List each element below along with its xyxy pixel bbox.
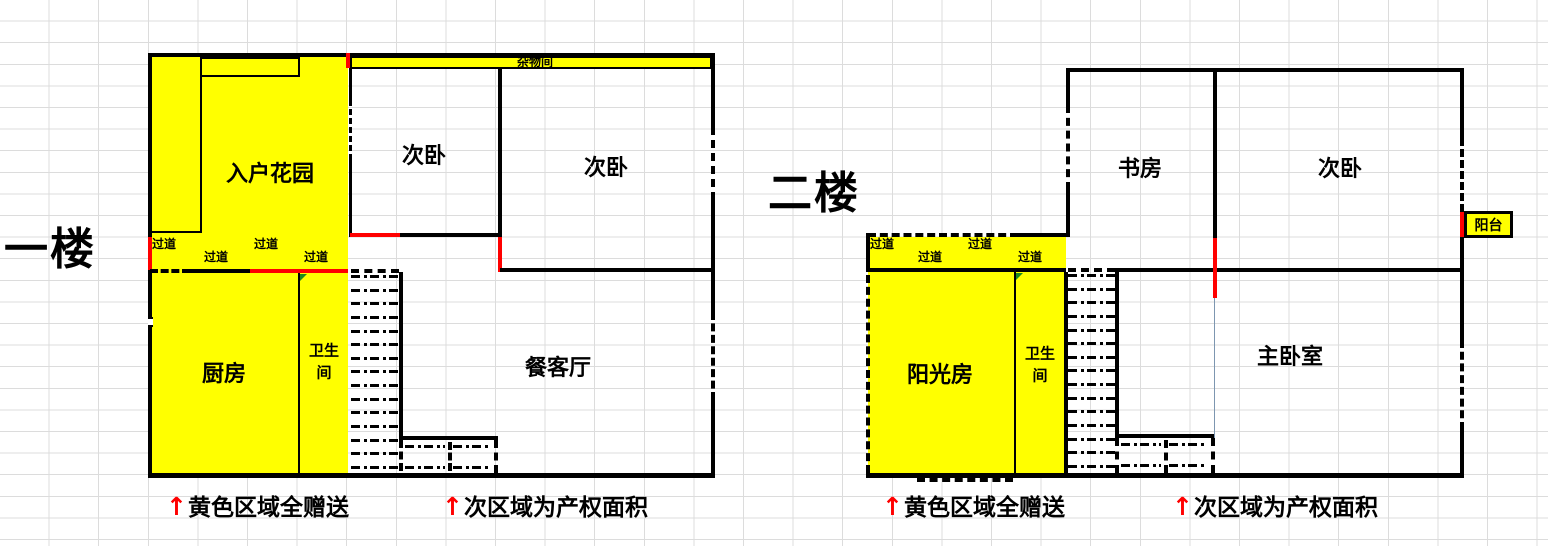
thin-guide-line: [1214, 298, 1215, 438]
room-label-bathroom: 间: [1032, 369, 1047, 384]
wall-opening: [148, 317, 153, 327]
door-marker: [350, 233, 400, 237]
stair-step-line: [405, 466, 445, 469]
room-label-bedroom-right: 次卧: [584, 158, 628, 180]
dashed-wall: [349, 100, 352, 160]
wall-segment: [1115, 268, 1464, 272]
corridor-label: 过道: [304, 251, 328, 263]
room-label-sunroom: 阳光房: [907, 365, 973, 387]
note-text: 次区域为产权面积: [1194, 495, 1378, 521]
wall-segment: [1460, 430, 1464, 478]
stair-step-line: [351, 316, 399, 319]
corridor-label: 过道: [918, 251, 942, 263]
dashed-wall: [711, 312, 715, 400]
stair-step-line: [1169, 443, 1207, 446]
dashed-wall: [1066, 105, 1070, 190]
floorplan-canvas: { "colors": { "gifted_area": "#ffff00", …: [0, 0, 1548, 546]
room-label-kitchen: 厨房: [202, 364, 246, 386]
door-marker: [1213, 238, 1217, 298]
stair-step-line: [1068, 424, 1115, 427]
door-marker: [498, 237, 502, 272]
stair-step-line: [1121, 443, 1161, 446]
wall-segment: [711, 53, 715, 127]
wall-segment: [190, 269, 250, 273]
dashed-wall: [351, 269, 399, 273]
stair-step-line: [1068, 329, 1115, 332]
up-arrow-icon: ↑: [166, 492, 187, 521]
stair-step-line: [351, 343, 399, 346]
stair-step-line: [1068, 342, 1115, 345]
stair-step-line: [351, 330, 399, 333]
stair-landing: [405, 445, 445, 469]
corridor-label: 过道: [152, 238, 176, 250]
cell-flag-triangle: [300, 274, 307, 281]
note-text: 黄色区域全赠送: [904, 495, 1065, 521]
stair-step-line: [351, 439, 399, 442]
corridor-label: 过道: [1018, 251, 1042, 263]
wall-segment: [711, 400, 715, 478]
dashed-wall: [1460, 340, 1464, 430]
inner-partition-line: [298, 273, 300, 473]
stair-step-line: [1068, 410, 1115, 413]
room-label-living-dining: 餐客厅: [525, 358, 591, 380]
corridor-label: 过道: [870, 238, 894, 250]
floor1-plan: 入户花园 杂物间 次卧 次卧 厨房 卫生 间 餐客厅 过道 过道 过道 过道: [148, 53, 715, 478]
room-label-bathroom: 卫生: [1025, 347, 1055, 362]
dashed-wall: [1211, 438, 1215, 473]
dashed-wall: [1460, 138, 1464, 212]
room-label-master-bedroom: 主卧室: [1257, 347, 1323, 369]
stair-step-line: [1068, 451, 1115, 454]
wall-segment: [711, 200, 715, 312]
stair-step-line: [1169, 464, 1207, 467]
stair-step-line: [351, 411, 399, 414]
dashed-wall: [1115, 438, 1119, 473]
stair-landing: [453, 445, 491, 469]
room-label-bedroom-left: 次卧: [402, 146, 446, 168]
door-marker: [346, 53, 350, 68]
note-gifted-area: ↑黄色区域全赠送: [166, 494, 349, 520]
stair-step-line: [1121, 464, 1161, 467]
up-arrow-icon: ↑: [882, 492, 903, 521]
room-label-entry-garden: 入户花园: [226, 164, 314, 186]
wall-segment: [1213, 68, 1217, 238]
floor2-plan: 阳台 书房 次卧 阳光房 卫生 间 主卧室 过道 过道 过道 过道: [864, 66, 1515, 478]
stairs: [1068, 274, 1115, 468]
note-gifted-area: ↑黄色区域全赠送: [882, 494, 1065, 520]
stair-step-line: [1068, 301, 1115, 304]
wall-segment: [1066, 68, 1464, 72]
room-label-bedroom: 次卧: [1318, 159, 1362, 181]
wall-segment: [498, 68, 502, 237]
note-property-area: ↑次区域为产权面积: [442, 494, 648, 520]
cell-flag-triangle: [1016, 273, 1023, 280]
up-arrow-icon: ↑: [1172, 492, 1193, 521]
stair-step-line: [1068, 438, 1115, 441]
room-label-storage: 杂物间: [517, 56, 553, 68]
wall-segment: [349, 68, 352, 100]
inner-partition-line: [150, 231, 202, 233]
stair-step-line: [351, 302, 399, 305]
corridor-label: 过道: [204, 251, 228, 263]
room-label-study: 书房: [1118, 159, 1162, 181]
stair-step-line: [351, 466, 399, 469]
note-text: 次区域为产权面积: [464, 495, 648, 521]
dashed-wall: [1068, 268, 1115, 272]
wall-segment: [1115, 272, 1119, 438]
wall-segment: [866, 268, 1066, 272]
wall-segment: [1066, 190, 1070, 237]
room-label-bathroom: 卫生: [309, 344, 339, 359]
stair-step-line: [1068, 315, 1115, 318]
dashed-wall: [1164, 440, 1168, 473]
stair-step-line: [1068, 274, 1115, 277]
inner-partition-line: [200, 57, 202, 233]
stair-step-line: [405, 445, 445, 448]
wall-segment: [1066, 68, 1070, 105]
wall-segment: [349, 160, 352, 237]
room-label-bathroom: 间: [316, 366, 331, 381]
dashed-wall: [917, 478, 1013, 482]
dashed-wall: [711, 127, 715, 200]
stair-step-line: [1068, 383, 1115, 386]
stair-step-line: [351, 398, 399, 401]
dashed-wall: [150, 269, 190, 273]
stair-step-line: [453, 445, 491, 448]
up-arrow-icon: ↑: [442, 492, 463, 521]
stair-landing: [1169, 443, 1207, 467]
stair-step-line: [351, 275, 399, 278]
wall-segment: [399, 272, 403, 440]
wall-segment: [500, 268, 713, 272]
dashed-wall: [399, 440, 403, 471]
note-text: 黄色区域全赠送: [188, 495, 349, 521]
balcony-box: 阳台: [1464, 211, 1513, 238]
wall-segment: [1018, 233, 1066, 237]
stair-step-line: [351, 452, 399, 455]
note-property-area: ↑次区域为产权面积: [1172, 494, 1378, 520]
inner-partition-line: [1014, 272, 1016, 473]
wall-segment: [400, 233, 498, 237]
floor1-title: 一楼: [4, 228, 96, 272]
stair-landing: [1121, 443, 1161, 467]
stair-step-line: [351, 425, 399, 428]
stair-step-line: [1068, 288, 1115, 291]
wall-segment: [148, 473, 715, 478]
stair-step-line: [453, 466, 491, 469]
stair-step-line: [1068, 356, 1115, 359]
dashed-wall: [448, 442, 452, 471]
stair-step-line: [1068, 397, 1115, 400]
corridor-label: 过道: [968, 238, 992, 250]
stair-step-line: [1068, 465, 1115, 468]
wall-segment: [1460, 68, 1464, 138]
stair-step-line: [351, 289, 399, 292]
stair-step-line: [351, 384, 399, 387]
wall-segment: [1460, 237, 1464, 340]
corridor-label: 过道: [254, 238, 278, 250]
dashed-wall: [494, 440, 498, 473]
dashed-wall: [866, 275, 870, 473]
stairs: [351, 275, 399, 469]
closet-outline: [200, 57, 300, 77]
stair-step-line: [1068, 369, 1115, 372]
stair-step-line: [351, 370, 399, 373]
room-label-balcony: 阳台: [1475, 215, 1503, 235]
wall-segment: [1115, 434, 1215, 438]
floor2-title: 二楼: [768, 172, 860, 216]
stair-step-line: [351, 357, 399, 360]
wall-segment: [399, 436, 498, 440]
